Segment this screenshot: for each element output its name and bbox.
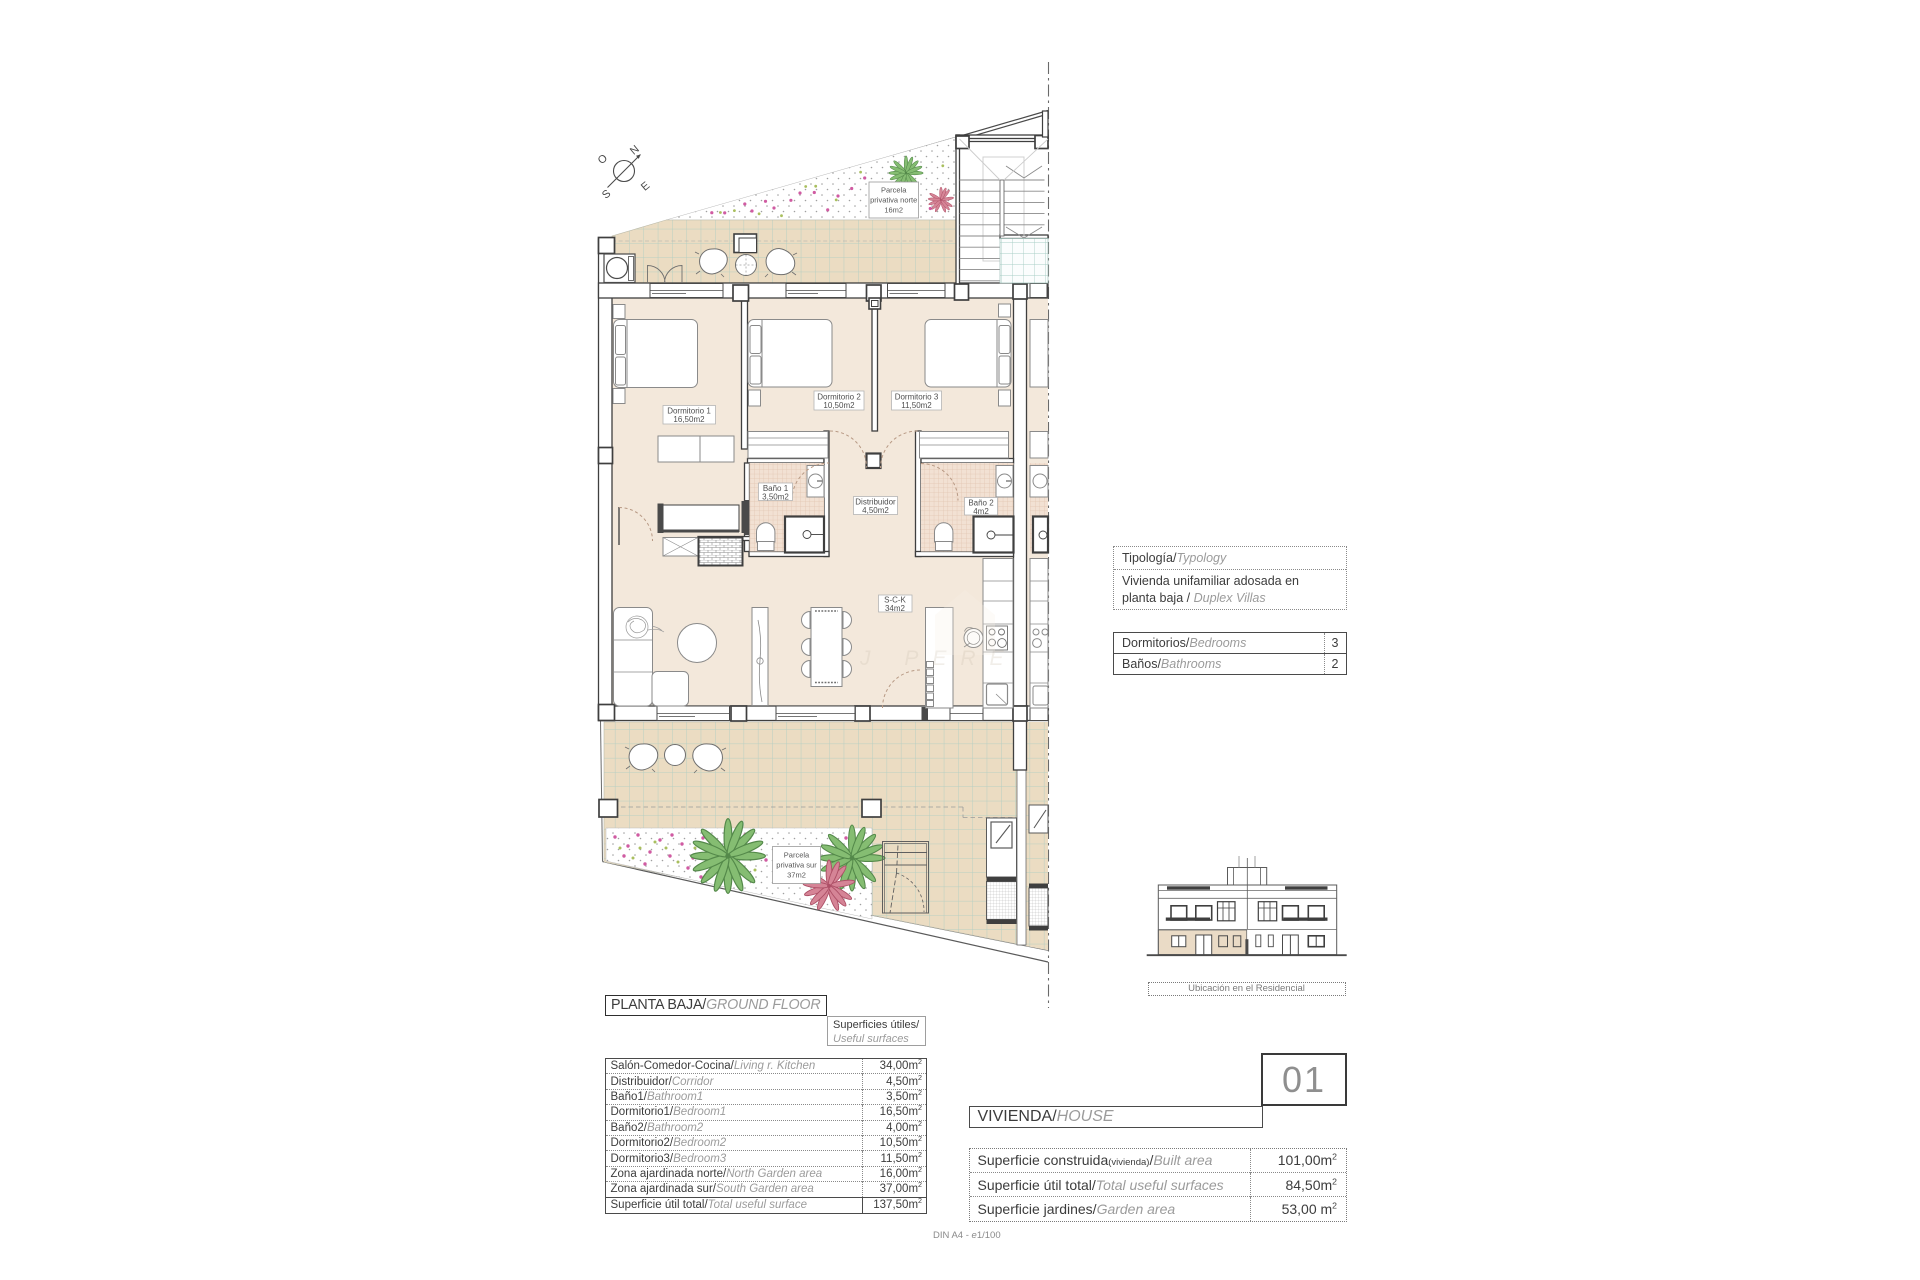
svg-text:16,50m2: 16,50m2 (673, 415, 705, 424)
svg-text:Parcela: Parcela (784, 851, 810, 860)
svg-text:E: E (639, 180, 652, 194)
svg-text:16m2: 16m2 (884, 206, 903, 215)
svg-text:4,50m2: 4,50m2 (862, 506, 889, 515)
svg-text:S: S (600, 188, 613, 202)
svg-text:34m2: 34m2 (885, 604, 906, 613)
svg-text:11,50m2: 11,50m2 (901, 401, 932, 410)
svg-text:10,50m2: 10,50m2 (823, 401, 855, 410)
svg-text:privativa norte: privativa norte (870, 196, 917, 205)
svg-text:37m2: 37m2 (787, 871, 806, 880)
svg-text:3,50m2: 3,50m2 (762, 493, 789, 502)
svg-text:4m2: 4m2 (973, 507, 989, 516)
svg-text:Parcela: Parcela (881, 186, 907, 195)
svg-text:privativa sur: privativa sur (776, 861, 817, 870)
svg-text:J PERE: J PERE (859, 647, 1018, 670)
svg-text:O: O (596, 152, 611, 167)
